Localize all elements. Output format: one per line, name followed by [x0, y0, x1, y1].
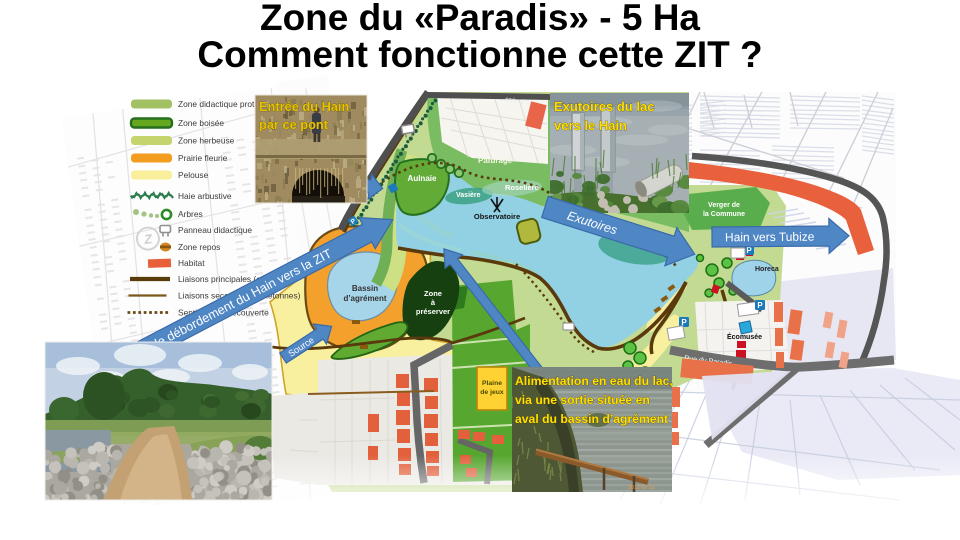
- svg-text:Prairie fleurie: Prairie fleurie: [178, 153, 228, 163]
- svg-text:Pelouse: Pelouse: [178, 170, 209, 180]
- svg-text:vers le Hain: vers le Hain: [554, 118, 627, 133]
- svg-text:Horeca: Horeca: [755, 266, 779, 273]
- svg-text:d’agrément: d’agrément: [343, 294, 386, 303]
- svg-text:Haie arbustive: Haie arbustive: [178, 191, 232, 201]
- svg-text:Zone herbeuse: Zone herbeuse: [178, 136, 235, 146]
- svg-text:Entrée du Hain: Entrée du Hain: [259, 99, 349, 114]
- svg-text:aval du bassin d’agrément: aval du bassin d’agrément: [515, 412, 668, 426]
- svg-text:Zone: Zone: [424, 289, 442, 298]
- svg-text:préserver: préserver: [416, 307, 450, 316]
- svg-text:par ce pont: par ce pont: [259, 117, 329, 132]
- svg-text:Hain vers Tubize: Hain vers Tubize: [725, 230, 815, 245]
- svg-text:Zone repos: Zone repos: [178, 242, 220, 252]
- svg-text:Aulnaie: Aulnaie: [408, 174, 437, 183]
- svg-text:2011 07 11: 2011 07 11: [628, 485, 655, 491]
- svg-text:via une sortie située en: via une sortie située en: [515, 393, 650, 407]
- svg-text:Écomusée: Écomusée: [727, 332, 762, 341]
- svg-text:Habitat: Habitat: [178, 258, 205, 268]
- svg-text:Plaine: Plaine: [482, 380, 502, 387]
- svg-text:P: P: [746, 246, 752, 255]
- svg-text:Bassin: Bassin: [352, 284, 378, 293]
- svg-text:Observatoire: Observatoire: [474, 212, 520, 221]
- svg-text:de jeux: de jeux: [480, 389, 504, 396]
- svg-text:Arbres: Arbres: [178, 209, 203, 219]
- svg-text:P: P: [757, 301, 763, 310]
- svg-text:Vasière: Vasière: [456, 192, 481, 199]
- svg-text:Roselière: Roselière: [505, 183, 539, 192]
- svg-text:Panneau didactique: Panneau didactique: [178, 225, 252, 235]
- svg-text:Exutoires du lac: Exutoires du lac: [554, 99, 654, 114]
- svg-text:Zone boisée: Zone boisée: [178, 118, 224, 128]
- svg-text:Alimentation en eau du lac,: Alimentation en eau du lac,: [515, 374, 673, 388]
- svg-text:Verger de: Verger de: [708, 202, 740, 209]
- svg-text:Pâturage: Pâturage: [478, 156, 513, 165]
- svg-text:la Commune: la Commune: [703, 211, 745, 218]
